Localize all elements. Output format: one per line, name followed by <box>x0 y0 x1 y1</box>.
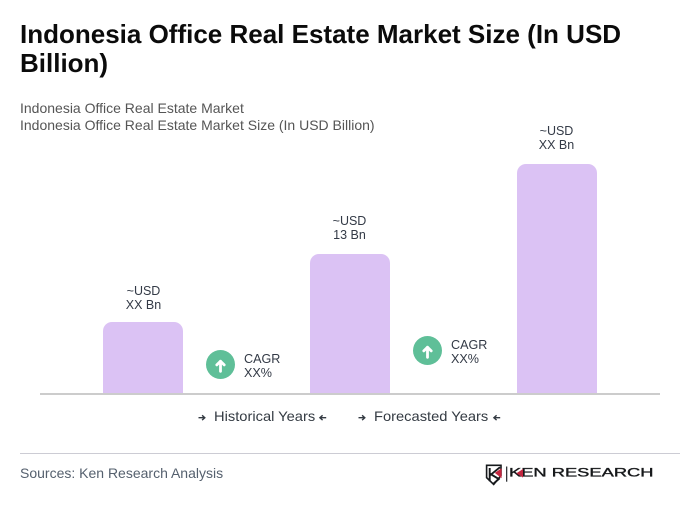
svg-text:KEN RESEARCH: KEN RESEARCH <box>509 466 654 480</box>
